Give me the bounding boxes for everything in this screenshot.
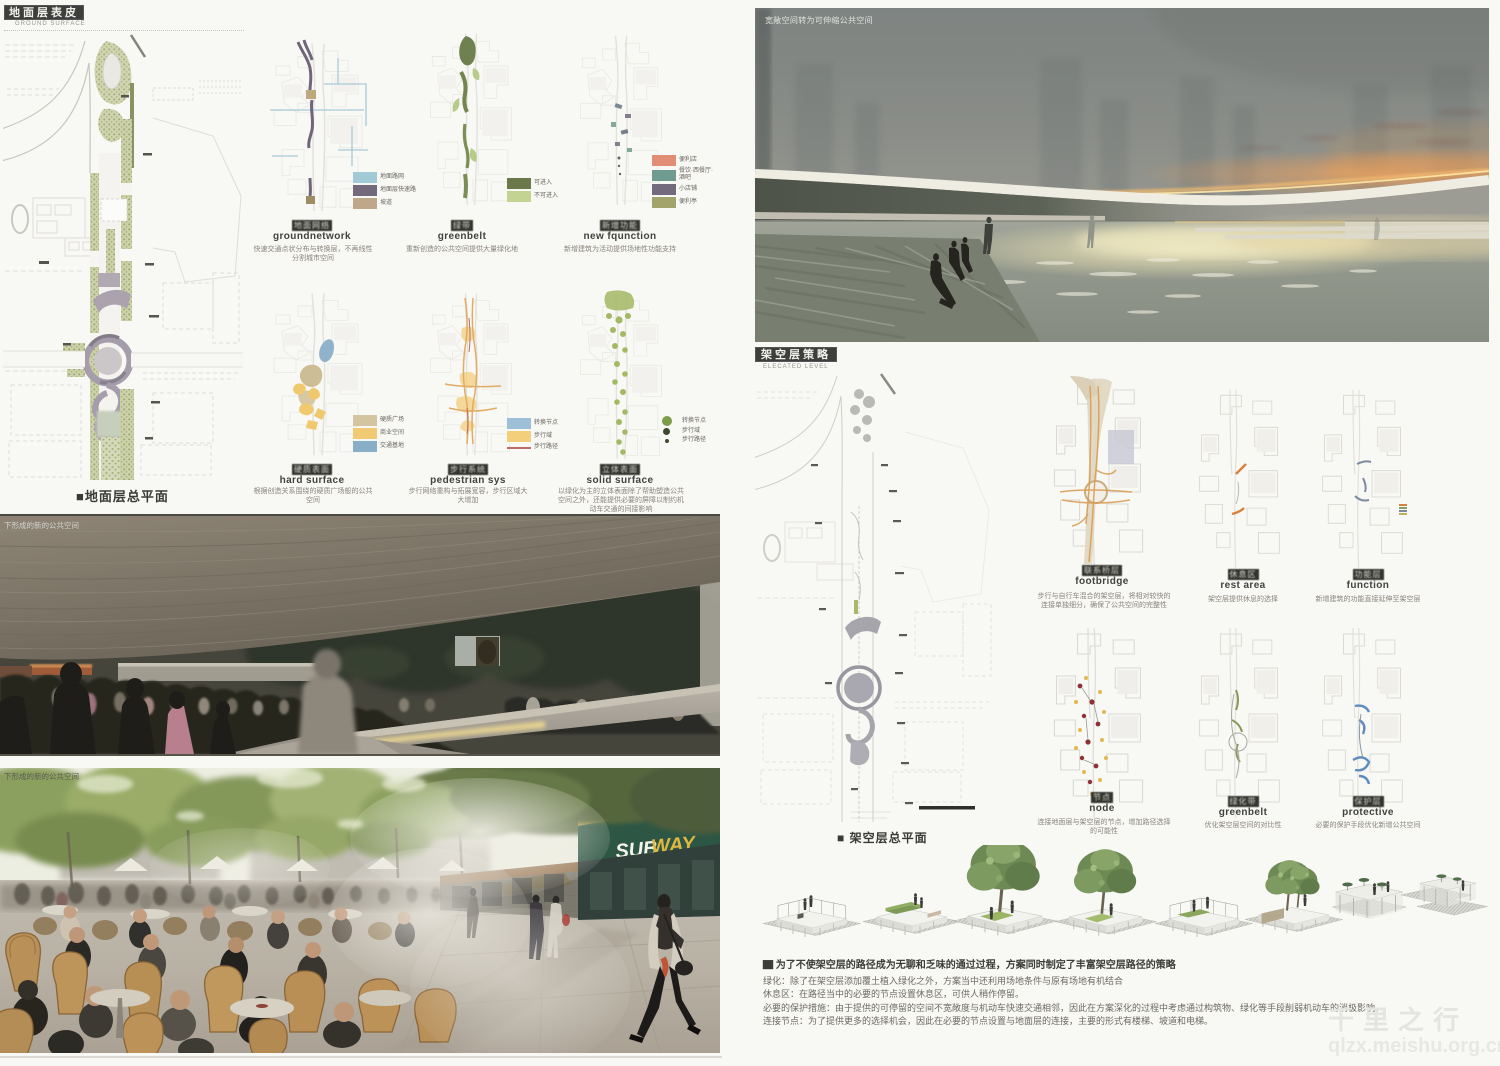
svg-text:宽敞空间转为可伸缩公共空间: 宽敞空间转为可伸缩公共空间 — [765, 15, 873, 25]
svg-text:下形成的新的公共空间: 下形成的新的公共空间 — [4, 771, 79, 781]
svg-text:下形成的新的公共空间: 下形成的新的公共空间 — [4, 520, 79, 530]
